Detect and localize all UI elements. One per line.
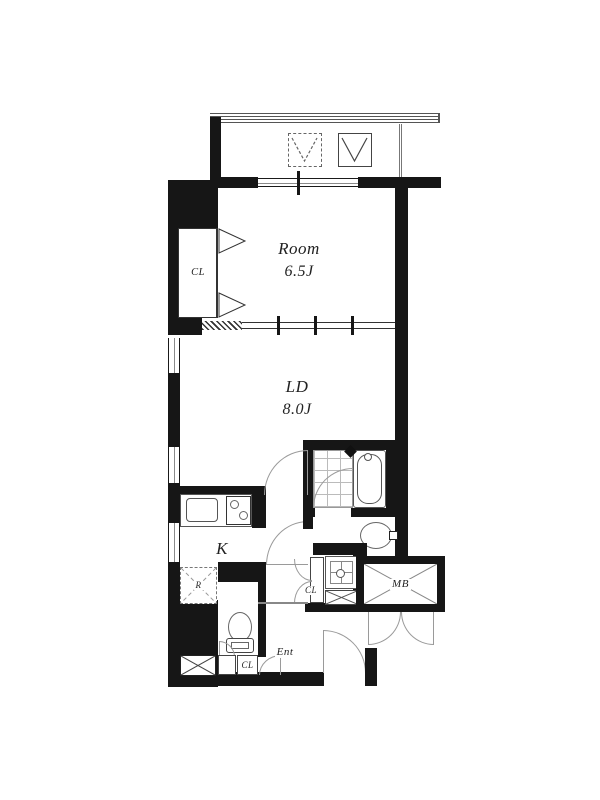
pipe-space-box — [180, 655, 216, 676]
hall-closet-label: CL — [299, 583, 323, 597]
hall-closet-door-arc — [294, 559, 312, 581]
wall-segment — [303, 508, 315, 517]
pipe-space-box — [325, 590, 358, 605]
room-label: Room — [249, 237, 349, 259]
window — [168, 523, 180, 562]
sliding-door-tick — [277, 316, 280, 335]
bathtub-drain — [364, 453, 372, 461]
floor-plan: CL CL — [0, 0, 600, 800]
wall-segment — [386, 440, 398, 517]
ld-label: LD — [247, 375, 347, 397]
balcony-divider — [399, 124, 402, 178]
wall-segment — [168, 228, 178, 318]
entrance-closet-label: CL — [237, 655, 258, 675]
sliding-door-tick — [314, 316, 317, 335]
window-tick — [297, 171, 300, 195]
toilet-step-box — [218, 655, 236, 675]
meter-box-door-arc — [368, 612, 401, 645]
wall-segment — [210, 117, 221, 180]
wall-segment — [351, 508, 398, 517]
entrance-step-line — [258, 602, 308, 604]
sliding-door-tick — [351, 316, 354, 335]
meter-box-label: MB — [364, 564, 437, 604]
entrance-label: Ent — [268, 644, 302, 660]
stove — [226, 496, 251, 525]
wall-segment — [218, 562, 266, 582]
stove-burner — [239, 511, 248, 520]
kitchen-sink — [186, 498, 218, 522]
room-size-label: 6.5J — [249, 261, 349, 283]
ac-unit-dashed-icon — [288, 133, 322, 167]
wall-segment — [168, 373, 180, 447]
window — [168, 338, 180, 373]
wall-segment — [258, 582, 266, 657]
ac-unit-solid-icon — [338, 133, 372, 167]
kitchen-label: K — [206, 536, 238, 560]
stove-burner — [230, 500, 239, 509]
window — [258, 178, 358, 187]
balcony-railing — [210, 113, 440, 123]
partition-hatch — [202, 321, 242, 330]
ld-hall-door-arc — [264, 450, 308, 495]
wall-segment — [303, 517, 313, 529]
meter-box-door-arc — [401, 612, 434, 645]
ld-size-label: 8.0J — [247, 399, 347, 421]
wall-segment — [168, 180, 218, 228]
window — [168, 447, 180, 483]
closet-label: CL — [178, 228, 218, 318]
entrance-door-arc — [323, 630, 366, 673]
refrigerator-label: R — [180, 567, 217, 604]
washer-drain — [336, 569, 345, 578]
wall-segment — [168, 316, 202, 335]
washbasin-tap — [389, 531, 398, 540]
wall-segment — [365, 648, 377, 686]
wall-segment — [218, 177, 258, 188]
sliding-door-track — [242, 322, 395, 329]
folding-door-icon — [218, 228, 248, 318]
balcony-railing-end — [438, 113, 440, 123]
